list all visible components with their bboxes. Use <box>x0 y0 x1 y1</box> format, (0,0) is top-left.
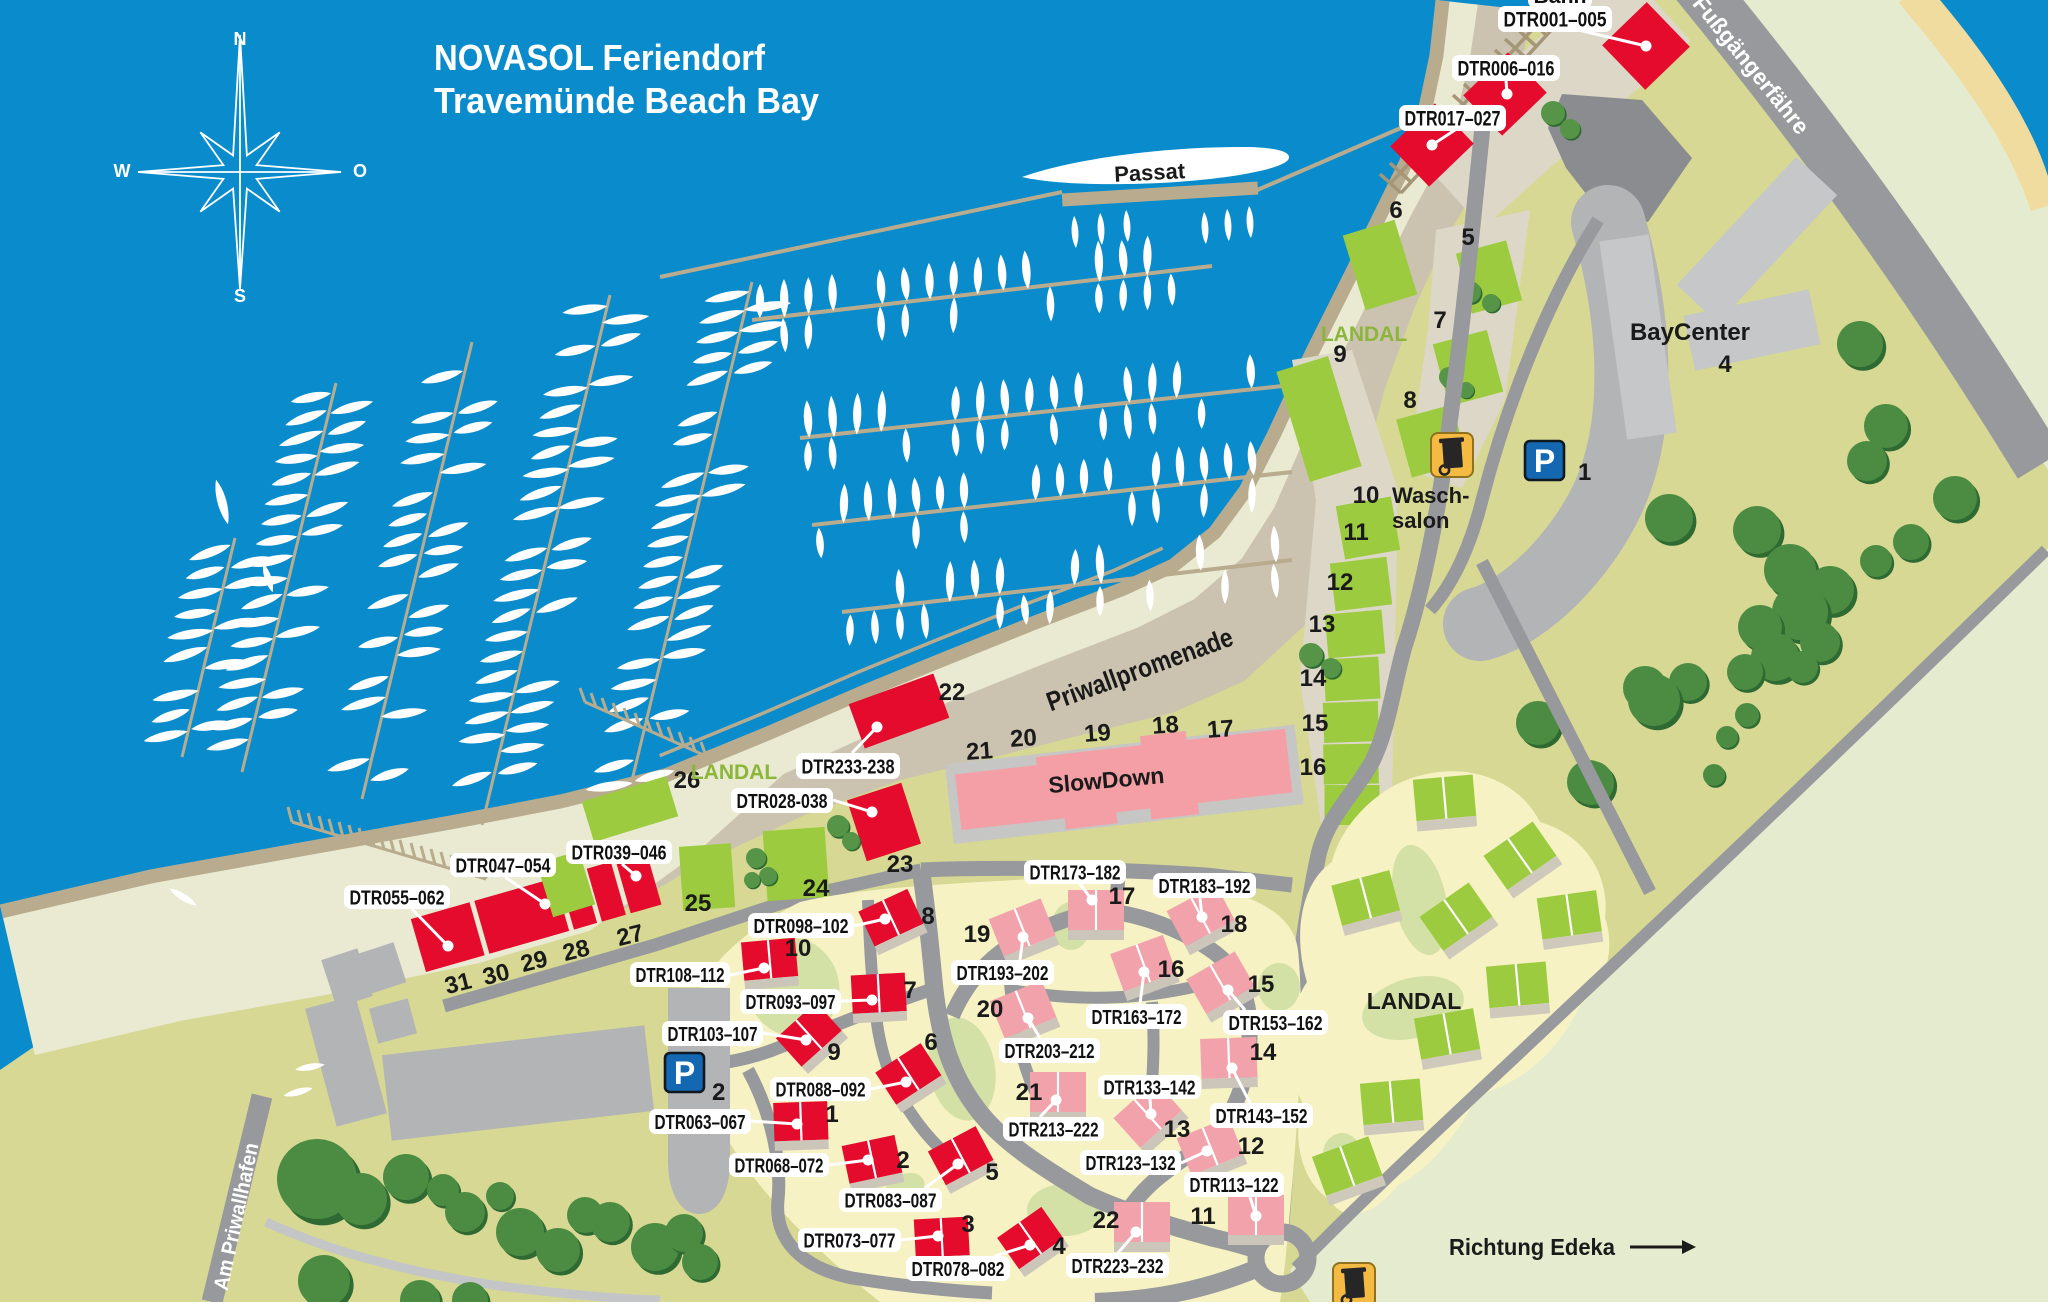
svg-text:Travemünde Beach Bay: Travemünde Beach Bay <box>434 80 819 121</box>
svg-text:21: 21 <box>965 737 994 766</box>
svg-text:DTR083–087: DTR083–087 <box>845 1189 937 1212</box>
svg-text:Passat: Passat <box>1114 158 1187 187</box>
svg-text:5: 5 <box>985 1159 998 1186</box>
svg-text:24: 24 <box>803 875 830 902</box>
svg-text:DTR063–067: DTR063–067 <box>655 1111 746 1134</box>
svg-text:2: 2 <box>896 1147 909 1174</box>
svg-text:LANDAL: LANDAL <box>1321 323 1407 346</box>
svg-text:16: 16 <box>1158 956 1185 983</box>
svg-text:1: 1 <box>1578 459 1591 486</box>
svg-text:Wasch-: Wasch- <box>1392 483 1469 508</box>
svg-text:DTR123–132: DTR123–132 <box>1086 1152 1176 1175</box>
svg-text:DTR173–182: DTR173–182 <box>1030 861 1121 884</box>
svg-text:Bahn: Bahn <box>1534 0 1587 8</box>
svg-text:P: P <box>1534 443 1555 479</box>
svg-text:8: 8 <box>921 903 934 930</box>
svg-text:17: 17 <box>1109 883 1136 910</box>
svg-text:9: 9 <box>827 1039 840 1066</box>
svg-text:12: 12 <box>1327 569 1354 596</box>
svg-text:DTR108–112: DTR108–112 <box>636 964 725 987</box>
svg-text:DTR078–082: DTR078–082 <box>912 1258 1005 1281</box>
svg-text:DTR088–092: DTR088–092 <box>776 1078 866 1101</box>
svg-text:LANDAL: LANDAL <box>691 761 777 784</box>
svg-text:4: 4 <box>1718 351 1732 378</box>
svg-text:16: 16 <box>1300 754 1327 781</box>
svg-text:DTR093–097: DTR093–097 <box>746 991 836 1014</box>
svg-text:25: 25 <box>685 890 712 917</box>
svg-text:22: 22 <box>939 679 966 706</box>
svg-text:11: 11 <box>1343 519 1368 546</box>
svg-text:DTR163–172: DTR163–172 <box>1092 1006 1182 1029</box>
svg-text:DTR006–016: DTR006–016 <box>1458 57 1555 81</box>
svg-text:salon: salon <box>1392 508 1449 533</box>
svg-text:23: 23 <box>887 851 914 878</box>
svg-text:15: 15 <box>1302 710 1329 737</box>
svg-text:12: 12 <box>1238 1133 1265 1160</box>
svg-text:10: 10 <box>1353 482 1380 509</box>
svg-text:19: 19 <box>964 921 991 948</box>
svg-text:NOVASOL Feriendorf: NOVASOL Feriendorf <box>434 37 766 78</box>
svg-text:DTR073–077: DTR073–077 <box>804 1229 896 1252</box>
svg-text:DTR213–222: DTR213–222 <box>1009 1118 1099 1141</box>
svg-text:N: N <box>234 29 247 49</box>
svg-text:DTR055–062: DTR055–062 <box>350 886 445 909</box>
svg-text:20: 20 <box>1009 724 1038 753</box>
svg-text:8: 8 <box>1403 387 1416 414</box>
svg-text:W: W <box>114 161 131 181</box>
svg-text:7: 7 <box>1433 307 1446 334</box>
svg-text:DTR153–162: DTR153–162 <box>1229 1012 1323 1035</box>
svg-text:17: 17 <box>1206 715 1235 744</box>
svg-text:13: 13 <box>1309 611 1336 638</box>
svg-text:DTR039–046: DTR039–046 <box>572 841 667 864</box>
svg-text:6: 6 <box>924 1029 937 1056</box>
svg-text:14: 14 <box>1300 665 1327 692</box>
svg-text:Richtung Edeka: Richtung Edeka <box>1449 1234 1615 1260</box>
svg-text:20: 20 <box>977 996 1004 1023</box>
svg-text:DTR113–122: DTR113–122 <box>1190 1174 1279 1197</box>
svg-text:DTR017–027: DTR017–027 <box>1405 107 1501 131</box>
svg-text:DTR133–142: DTR133–142 <box>1104 1076 1196 1099</box>
svg-text:DTR203–212: DTR203–212 <box>1005 1040 1095 1063</box>
svg-text:DTR047–054: DTR047–054 <box>456 854 551 877</box>
svg-text:DTR001–005: DTR001–005 <box>1504 8 1607 32</box>
svg-text:15: 15 <box>1248 971 1275 998</box>
svg-text:DTR143–152: DTR143–152 <box>1216 1105 1308 1128</box>
svg-text:DTR233-238: DTR233-238 <box>802 755 895 778</box>
svg-text:LANDAL: LANDAL <box>1367 988 1462 1014</box>
svg-text:DTR068–072: DTR068–072 <box>735 1154 824 1177</box>
svg-text:O: O <box>353 161 367 181</box>
svg-text:14: 14 <box>1250 1039 1277 1066</box>
svg-text:7: 7 <box>903 977 916 1004</box>
svg-text:10: 10 <box>785 935 812 962</box>
svg-text:19: 19 <box>1083 719 1112 748</box>
svg-text:P: P <box>674 1055 695 1091</box>
svg-text:DTR028-038: DTR028-038 <box>737 790 828 813</box>
svg-text:5: 5 <box>1461 224 1474 251</box>
svg-text:11: 11 <box>1190 1203 1215 1230</box>
svg-text:18: 18 <box>1151 711 1180 740</box>
svg-text:BayCenter: BayCenter <box>1630 319 1750 346</box>
svg-text:DTR183–192: DTR183–192 <box>1159 875 1251 898</box>
svg-text:DTR098–102: DTR098–102 <box>754 915 849 938</box>
svg-text:DTR223–232: DTR223–232 <box>1072 1255 1164 1278</box>
svg-text:3: 3 <box>961 1211 974 1238</box>
svg-text:DTR103–107: DTR103–107 <box>668 1023 758 1046</box>
svg-text:S: S <box>234 286 246 306</box>
svg-text:13: 13 <box>1164 1116 1191 1143</box>
svg-text:DTR193–202: DTR193–202 <box>957 962 1049 985</box>
svg-text:21: 21 <box>1016 1079 1043 1106</box>
svg-text:18: 18 <box>1221 911 1248 938</box>
svg-text:1: 1 <box>825 1101 838 1128</box>
svg-text:22: 22 <box>1093 1207 1120 1234</box>
svg-text:4: 4 <box>1052 1233 1066 1260</box>
svg-text:6: 6 <box>1389 197 1402 224</box>
svg-text:2: 2 <box>712 1079 725 1106</box>
